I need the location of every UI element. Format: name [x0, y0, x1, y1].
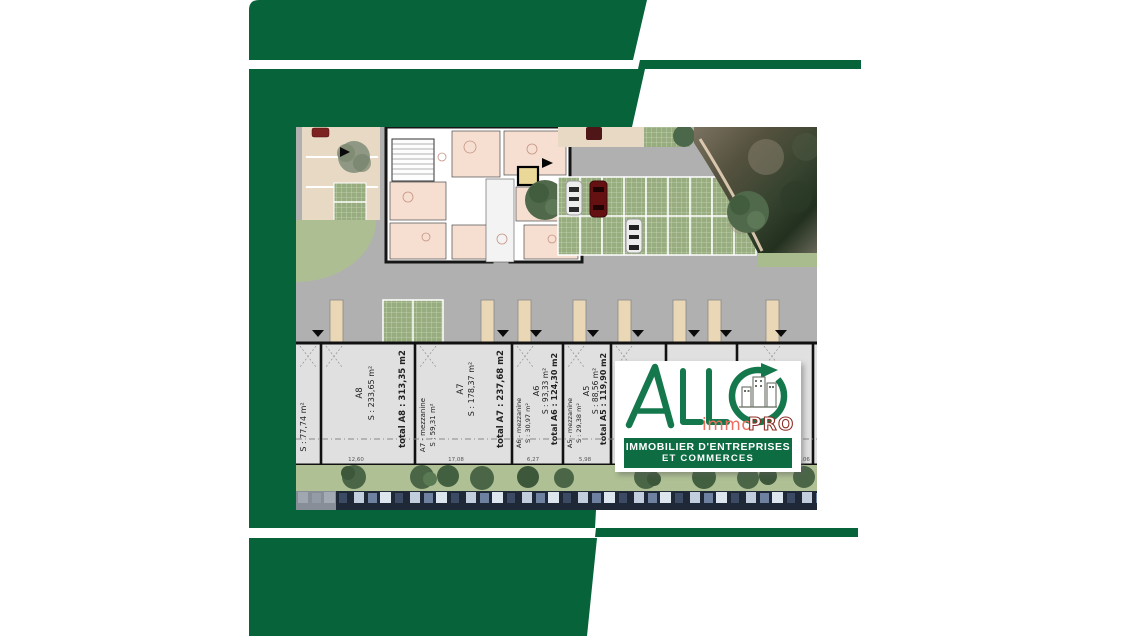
- flyer-canvas: S : 77,74 m² A8 S : 233,65 m² total A8 :…: [0, 0, 1130, 636]
- parking-strip-top: [558, 127, 695, 147]
- unit-name: A5: [582, 386, 591, 397]
- brand-sub-pro: PRO: [748, 414, 795, 435]
- green-bar-top-right: [638, 60, 861, 69]
- building-skyline-icon: [739, 377, 777, 407]
- brand-sub-immo: immo: [702, 415, 752, 435]
- unit-name: A8: [355, 387, 365, 398]
- unit-name: A6: [532, 386, 541, 397]
- mezzanine-name: A5 - mezzanine: [566, 398, 574, 448]
- corridor: [486, 179, 514, 262]
- green-parking-stalls-left: [334, 183, 366, 221]
- unit-fragment-area: S : 77,74 m²: [299, 402, 308, 451]
- tagline-line-1: IMMOBILIER D'ENTREPRISES: [624, 438, 792, 453]
- mezzanine-area: S : 29,38 m²: [575, 403, 583, 443]
- car-icon: [312, 128, 329, 137]
- unit-total: total A7 : 237,68 m2: [496, 350, 506, 448]
- street-photo-strip: [296, 491, 817, 510]
- unit-area: S : 233,65 m²: [367, 366, 376, 420]
- unit-total: total A5 : 119,90 m2: [599, 353, 608, 445]
- brand-logo: ALLO immo PRO: [615, 361, 801, 437]
- utility-room: [518, 167, 538, 185]
- mezzanine-area: S : 30,97 m²: [524, 403, 532, 443]
- green-band-bottom: [249, 538, 597, 636]
- unit-dim: 12,60: [348, 457, 364, 463]
- tagline-line-2: ET COMMERCES: [624, 453, 792, 464]
- green-bar-bottom-right: [595, 528, 858, 537]
- stairs: [392, 139, 434, 181]
- unit-area: S : 178,37 m²: [467, 362, 476, 416]
- brand-logo-box: ALLO immo PRO: [615, 361, 801, 472]
- unit-name: A7: [456, 383, 466, 394]
- unit-area: S : 93,33 m²: [541, 368, 550, 414]
- unit-dim: 6,27: [527, 457, 540, 463]
- car-icon: [566, 181, 582, 215]
- unit-total: total A6 : 124,30 m2: [550, 353, 559, 445]
- brand-tagline-banner: IMMOBILIER D'ENTREPRISES ET COMMERCES: [624, 438, 792, 468]
- unit-total: total A8 : 313,35 m2: [398, 350, 408, 448]
- car-icon: [626, 219, 642, 253]
- unit-dim: 17,08: [448, 457, 464, 463]
- tree-icon: [727, 191, 769, 233]
- green-band-top: [249, 0, 647, 60]
- car-icon: [586, 127, 602, 140]
- car-icon: [590, 181, 607, 217]
- mezzanine-name: A6 - mezzanine: [515, 398, 523, 448]
- mezzanine-name: A7 - mezzanine: [419, 398, 427, 452]
- unit-dim: 5,98: [579, 457, 592, 463]
- mezzanine-area: S : 59,31 m²: [429, 403, 437, 446]
